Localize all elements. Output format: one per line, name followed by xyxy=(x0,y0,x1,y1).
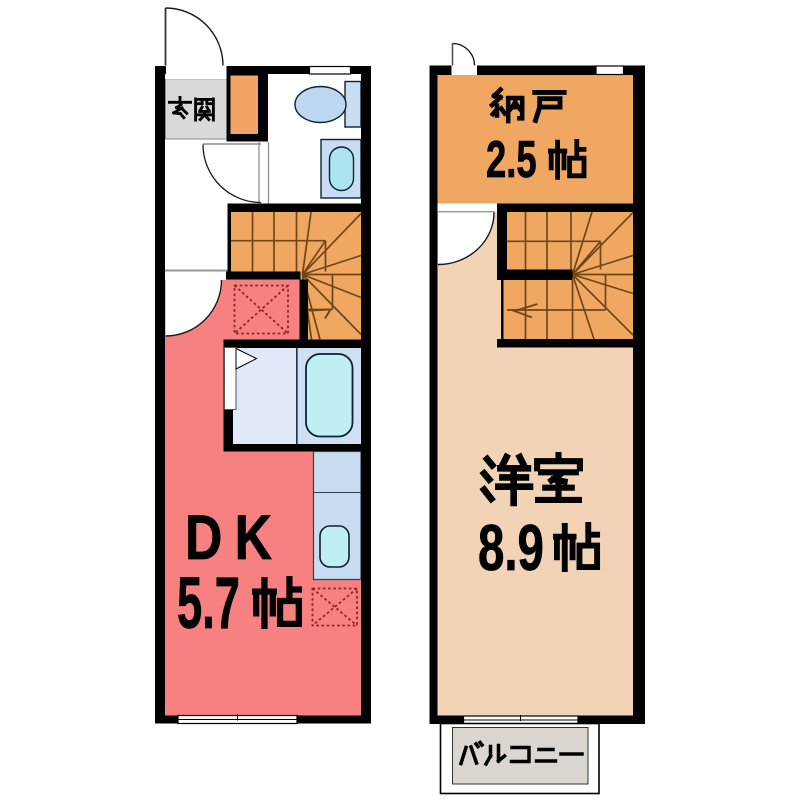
svg-text:8.9: 8.9 xyxy=(478,512,544,585)
svg-text:5.7: 5.7 xyxy=(177,562,240,644)
svg-text:2.5: 2.5 xyxy=(486,129,537,188)
